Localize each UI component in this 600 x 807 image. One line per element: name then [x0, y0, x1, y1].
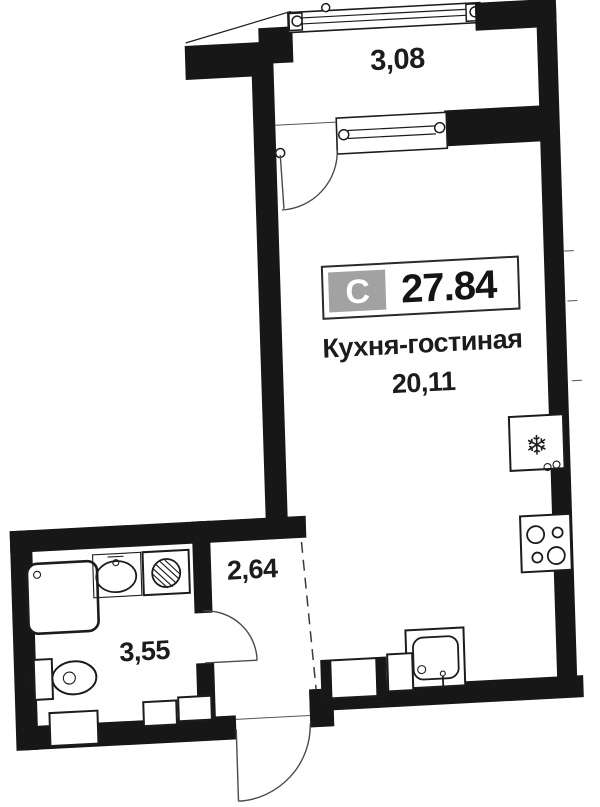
- washing-machine-icon: [143, 550, 190, 595]
- entry-door: [236, 715, 313, 801]
- exterior-tick: [564, 251, 574, 252]
- exterior-tick: [567, 300, 577, 301]
- toilet-icon: [26, 657, 97, 701]
- fridge-icon: ❄: [509, 414, 565, 472]
- shower-tray-icon: [27, 561, 99, 635]
- area-badge: С 27.84: [322, 257, 520, 319]
- wall-balcony-separation: [444, 105, 550, 146]
- exterior-tick: [572, 380, 582, 381]
- kitchen-sink-icon: [405, 627, 465, 688]
- floorplan-canvas: ❄: [0, 0, 600, 807]
- bathroom-area-label: 3,55: [119, 635, 171, 668]
- kitchen-living-area-label: 20,11: [391, 366, 456, 399]
- balcony-inner-window: [336, 112, 447, 154]
- stove-icon: [520, 514, 572, 573]
- wall-hall-top: [10, 516, 307, 553]
- bathroom-door: [203, 608, 257, 663]
- balcony-window: [288, 0, 481, 33]
- wall-left: [251, 57, 288, 537]
- balcony-area-label: 3,08: [370, 42, 426, 77]
- balcony-door: [275, 122, 339, 210]
- badge-type-label: С: [345, 272, 371, 311]
- washbasin-icon: [93, 552, 142, 597]
- badge-total-area: 27.84: [400, 263, 498, 312]
- svg-text:❄: ❄: [525, 430, 549, 462]
- kitchen-living-name-label: Кухня-гостиная: [322, 323, 523, 363]
- wall-bathroom-right-upper: [192, 521, 213, 614]
- hallway-area-label: 2,64: [226, 553, 278, 586]
- floor-plan: ❄: [0, 0, 600, 807]
- zone-divider-dashed: [301, 541, 316, 689]
